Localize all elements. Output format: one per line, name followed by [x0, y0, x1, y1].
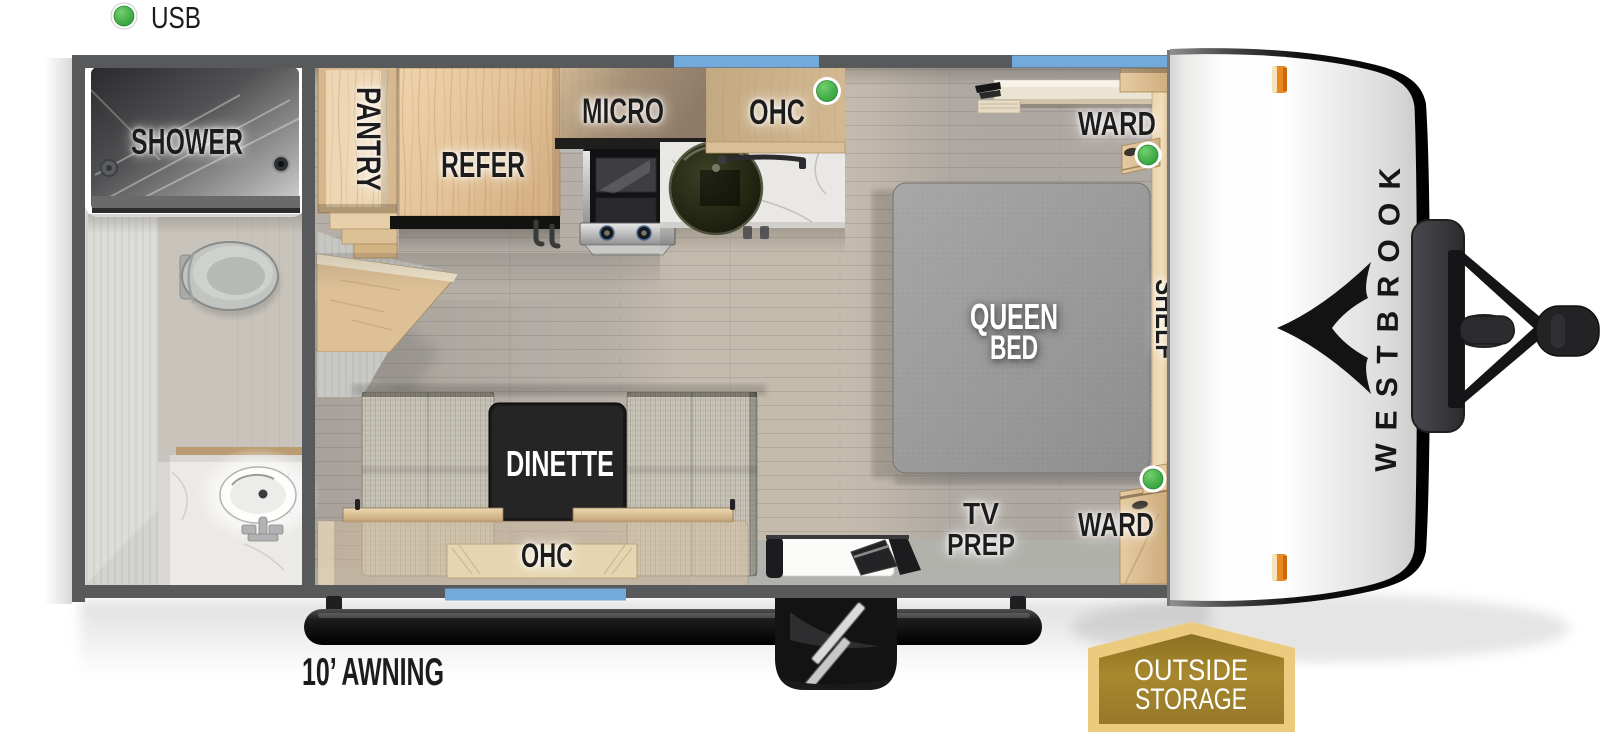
svg-text:BED: BED — [990, 329, 1038, 367]
svg-text:TV: TV — [963, 496, 999, 531]
svg-text:PREP: PREP — [947, 527, 1015, 562]
svg-text:REFER: REFER — [441, 144, 525, 185]
svg-text:DINETTE: DINETTE — [506, 443, 614, 484]
svg-text:SHOWER: SHOWER — [131, 121, 243, 162]
svg-text:WESTBROOK: WESTBROOK — [1370, 162, 1407, 472]
svg-text:10’ AWNING: 10’ AWNING — [302, 651, 444, 694]
svg-text:MICRO: MICRO — [582, 92, 664, 131]
svg-text:WARD: WARD — [1078, 506, 1154, 543]
svg-text:STORAGE: STORAGE — [1135, 683, 1247, 716]
svg-text:OHC: OHC — [521, 537, 573, 575]
svg-text:USB: USB — [151, 0, 201, 35]
svg-text:OHC: OHC — [749, 93, 805, 132]
svg-text:WARD: WARD — [1078, 105, 1156, 142]
svg-text:PANTRY: PANTRY — [349, 87, 387, 191]
